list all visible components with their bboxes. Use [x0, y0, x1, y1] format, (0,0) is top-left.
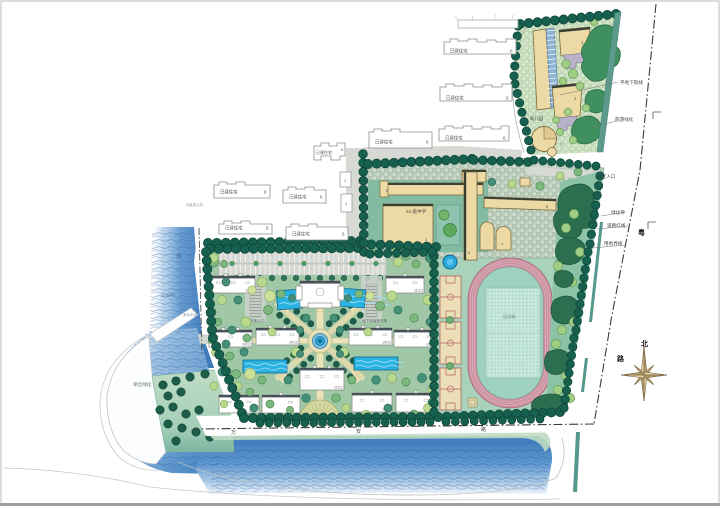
svg-text:河: 河	[176, 252, 182, 260]
svg-text:已建住宅: 已建住宅	[316, 149, 332, 155]
svg-text:路: 路	[617, 354, 625, 363]
svg-text:10/12: 10/12	[242, 343, 251, 347]
svg-text:道路红线: 道路红线	[607, 222, 626, 229]
svg-text:已建住宅: 已建住宅	[450, 48, 468, 55]
svg-text:已建住宅: 已建住宅	[289, 194, 307, 201]
svg-text:1: 1	[344, 179, 346, 183]
svg-text:沿河绿带: 沿河绿带	[161, 292, 176, 297]
svg-text:小区入口: 小区入口	[597, 173, 616, 180]
svg-text:单位绿化: 单位绿化	[133, 381, 152, 388]
svg-text:安: 安	[356, 428, 361, 435]
svg-text:平地下现线: 平地下现线	[620, 79, 643, 86]
svg-text:10/12: 10/12	[382, 341, 391, 345]
svg-text:已建住宅: 已建住宅	[292, 231, 310, 238]
svg-text:已建住宅: 已建住宅	[446, 95, 464, 102]
svg-text:绿化带: 绿化带	[611, 209, 625, 216]
svg-text:已建住宅: 已建住宅	[225, 225, 243, 232]
svg-text:地下车库停车场: 地下车库停车场	[362, 318, 388, 323]
svg-text:路: 路	[481, 426, 486, 433]
svg-text:亲水平台: 亲水平台	[183, 312, 198, 317]
svg-text:11/12: 11/12	[414, 289, 423, 293]
svg-text:11/12: 11/12	[334, 386, 343, 390]
svg-text:10/12: 10/12	[289, 341, 298, 345]
svg-text:万: 万	[231, 430, 236, 436]
svg-text:已建住宅: 已建住宅	[375, 139, 393, 146]
svg-text:幼儿园: 幼儿园	[530, 115, 544, 122]
svg-text:已建住宅: 已建住宅	[220, 189, 238, 196]
svg-text:北: 北	[641, 339, 648, 348]
svg-text:1: 1	[345, 202, 347, 206]
svg-text:用地界线: 用地界线	[604, 240, 623, 247]
svg-text:24 班中学: 24 班中学	[406, 208, 427, 215]
svg-text:旅游绿化: 旅游绿化	[615, 116, 634, 123]
svg-text:粤: 粤	[638, 228, 645, 237]
svg-text:运动场: 运动场	[503, 313, 516, 320]
svg-text:小区次入口: 小区次入口	[186, 202, 203, 207]
svg-text:已建住宅: 已建住宅	[445, 135, 463, 142]
